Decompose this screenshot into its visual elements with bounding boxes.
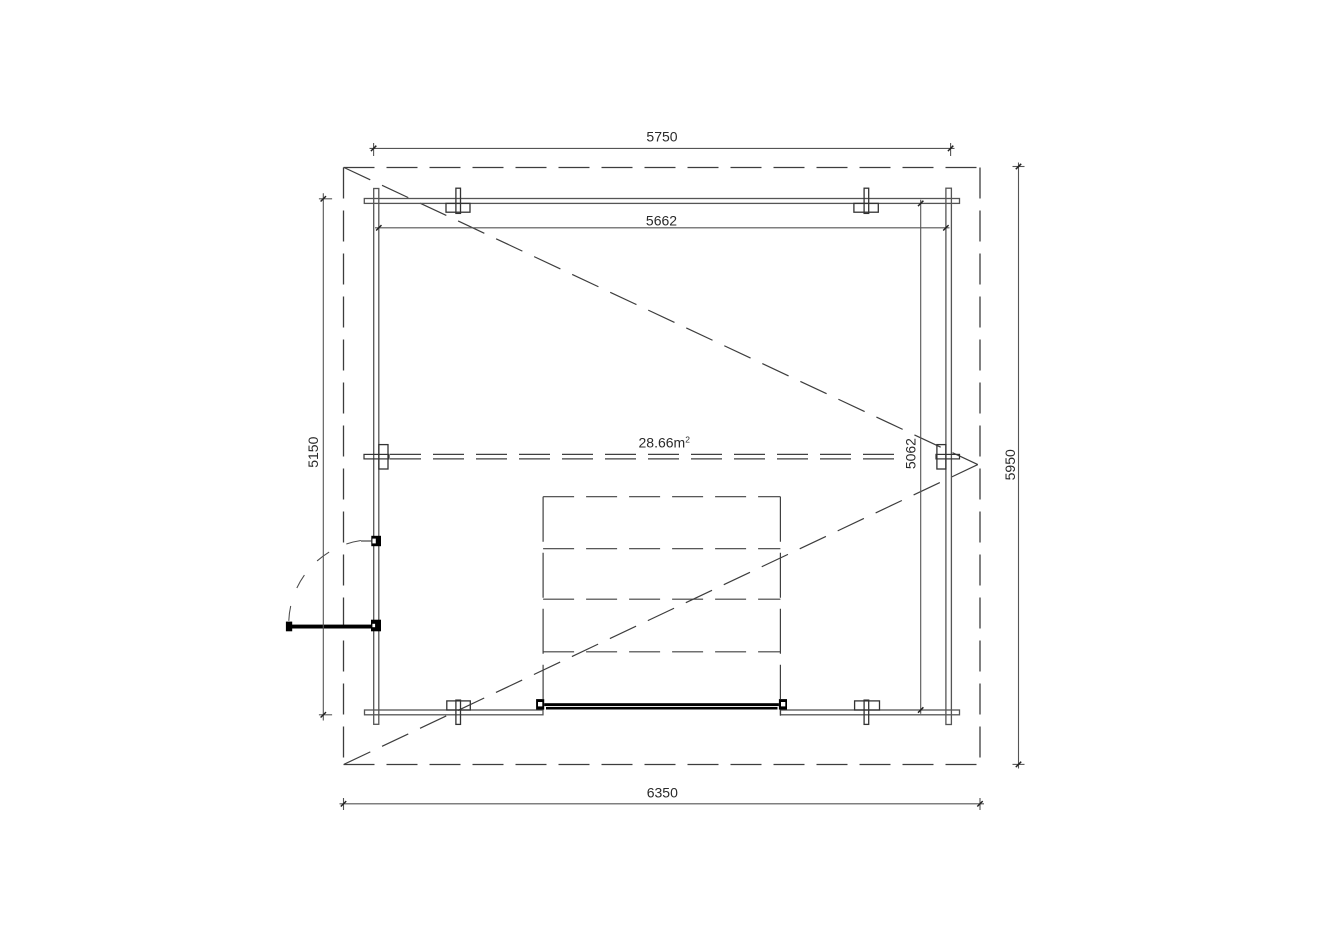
svg-text:5662: 5662 xyxy=(646,212,677,228)
svg-text:5062: 5062 xyxy=(903,438,919,469)
svg-text:28.66m2: 28.66m2 xyxy=(639,435,691,451)
svg-text:5150: 5150 xyxy=(305,436,321,467)
svg-text:5750: 5750 xyxy=(646,129,677,145)
svg-text:5950: 5950 xyxy=(1002,449,1018,480)
svg-text:6350: 6350 xyxy=(647,784,678,800)
